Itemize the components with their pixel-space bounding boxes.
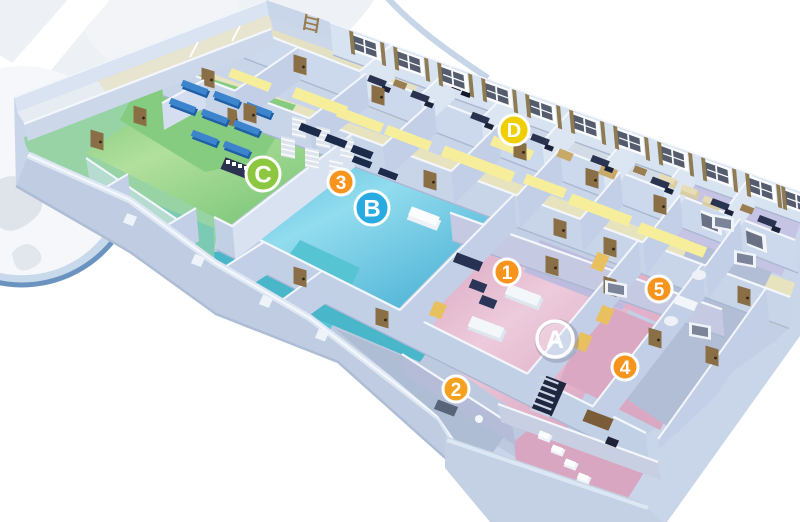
svg-text:5: 5 — [654, 280, 665, 301]
svg-text:2: 2 — [451, 380, 462, 401]
svg-text:4: 4 — [620, 358, 631, 379]
svg-text:1: 1 — [502, 263, 513, 284]
svg-text:A: A — [546, 326, 564, 354]
svg-text:3: 3 — [336, 173, 347, 194]
svg-text:C: C — [254, 162, 271, 189]
svg-text:D: D — [507, 120, 521, 142]
svg-text:B: B — [363, 196, 380, 223]
